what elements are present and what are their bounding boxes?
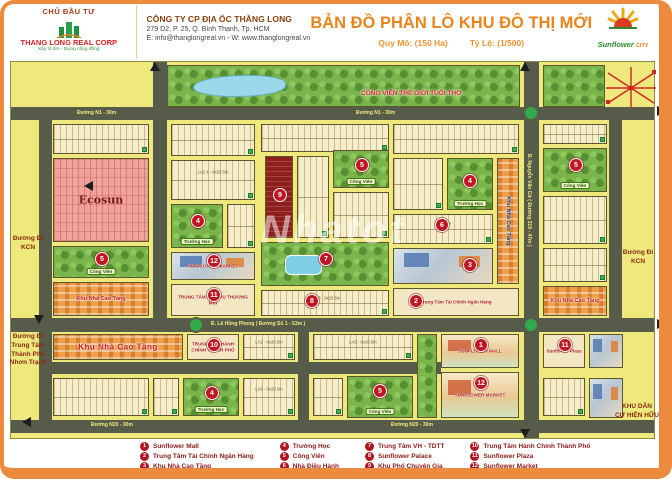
map-marker-1: 1 (474, 338, 488, 352)
legend-label: Khu Nhà Cao Tầng (153, 463, 211, 470)
sunflower-market-block-label: SUNFLOWER MARKET (444, 392, 517, 398)
lots-block: LA2 - 9x20.5m (243, 334, 295, 360)
block-label-chip: Trường Học (181, 238, 214, 245)
lots-block: LA1.4 - 9x20.5m (171, 160, 255, 200)
block-label-chip: Công Viên (561, 182, 590, 189)
lots-block (543, 248, 607, 282)
map-marker-5: 5 (355, 158, 369, 172)
road-le-hong-phong (11, 318, 655, 332)
header: CHỦ ĐẦU TƯ THANG LONG REAL CORP Xây tổ ấ… (18, 5, 654, 59)
edge-direction-label: Đường ĐiTrung TâmThành PhốNhơn Trạch (2, 333, 54, 368)
map-marker-10: 10 (207, 338, 221, 352)
direction-arrow-up (150, 62, 160, 71)
legend-number-badge: 2 (140, 452, 149, 461)
watermark: Nhatot (261, 208, 406, 253)
block-label-chip: Trường Học (195, 406, 228, 413)
park-name-label: CÔNG VIÊN THẾ GIỚI TUỔI THƠ (361, 90, 462, 97)
legend-item: 10Trung Tâm Hành Chính Thành Phố (470, 442, 590, 450)
highrise-block: Khu Nhà Cao Tầng (53, 334, 183, 360)
legend-column: 7Trung Tâm VH - TDTT8Sunflower Palace9Kh… (365, 442, 444, 470)
legend-label: Sunflower Market (483, 463, 537, 470)
road-east-edge (609, 107, 622, 332)
block-label-chip: Công Viên (366, 408, 395, 415)
legend-column: 1Sunflower Mall2Trung Tâm Tài Chính Ngân… (140, 442, 254, 470)
highrise-strip: Khu Nhà Cao Tầng (497, 158, 519, 284)
scale-area: Quy Mô: (150 Ha) (378, 38, 447, 48)
map-zone: EcosunCông ViênKhu Nhà Cao TầngLA1.4 - 9… (0, 61, 672, 439)
lots-block (261, 124, 389, 152)
map-marker-9: 9 (273, 188, 287, 202)
park-childhood-world (167, 65, 520, 107)
road-name-label: Đường N20 - 30m (391, 422, 433, 428)
roundabout (523, 317, 539, 333)
map-marker-4: 4 (191, 214, 205, 228)
legend-label: Công Viên (293, 453, 325, 460)
map-marker-5: 5 (373, 384, 387, 398)
direction-arrow-up (520, 62, 530, 71)
lots-block (227, 204, 255, 248)
legend-number-badge: 8 (365, 452, 374, 461)
legend-item: 11Sunflower Plaza (470, 452, 590, 460)
highrise-block-label: Khu Nhà Cao Tầng (550, 298, 599, 304)
block-label-chip: Công Viên (87, 268, 116, 275)
map-marker-4: 4 (463, 174, 477, 188)
legend-label: Trung Tâm VH - TDTT (378, 443, 444, 450)
legend-number-badge: 3 (140, 462, 149, 471)
legend-label: Khu Phố Chuyên Gia (378, 463, 443, 470)
map-marker-8: 8 (305, 294, 319, 308)
roundabout (188, 317, 204, 333)
road-name-label: Đ. Lê Hồng Phong ( Đường Số 1 - 53m ) (211, 321, 305, 327)
legend-item: 4Trường Học (280, 442, 339, 450)
legend-column: 4Trường Học5Công Viên6Nhà Điều Hành (280, 442, 339, 470)
thang-long-logo-icon (18, 18, 120, 38)
ecosun-area: Ecosun (53, 158, 149, 242)
road-name-label: Đường N1 - 30m (356, 110, 395, 116)
legend-label: Trung Tâm Tài Chính Ngân Hàng (153, 453, 254, 460)
direction-arrow-left (22, 417, 31, 427)
direction-arrow-left (84, 181, 93, 191)
lots-block (53, 378, 149, 416)
lots-block (313, 378, 343, 416)
legend-item: 5Công Viên (280, 452, 339, 460)
investor-block: CHỦ ĐẦU TƯ THANG LONG REAL CORP Xây tổ ấ… (18, 5, 120, 59)
legend-item: 6Nhà Điều Hành (280, 462, 339, 470)
investor-label: CHỦ ĐẦU TƯ (18, 7, 120, 16)
roundabout (523, 105, 539, 121)
legend-number-badge: 6 (280, 462, 289, 471)
block-label-chip: Trường Học (454, 200, 487, 207)
map-canvas: EcosunCông ViênKhu Nhà Cao TầngLA1.4 - 9… (10, 61, 655, 439)
sunflower-sun-icon (603, 7, 643, 35)
legend-item: 7Trung Tâm VH - TDTT (365, 442, 444, 450)
park-strip (417, 334, 437, 418)
lots-block (543, 378, 585, 416)
lots-block: LA5 - 9x20.5m (313, 334, 413, 360)
sunflower-city-logo: Sunflower CITY (592, 5, 654, 59)
edge-direction-label: Đường ĐiKCN (6, 235, 50, 253)
lots-block (171, 124, 255, 156)
brand-text: Sunflower CITY (592, 40, 654, 49)
edge-direction-label: Đường ĐiKCN (614, 249, 662, 267)
map-marker-4: 4 (205, 386, 219, 400)
logo-tagline: Xây tổ ấm - Dựng cộng đồng (18, 47, 120, 52)
legend-label: Trường Học (293, 443, 331, 450)
map-marker-11: 11 (558, 338, 572, 352)
map-marker-6: 6 (435, 218, 449, 232)
legend-number-badge: 11 (470, 452, 479, 461)
legend-label: Trung Tâm Hành Chính Thành Phố (483, 443, 590, 450)
lot-size-label: LA5 - 9x20.5m (349, 339, 376, 344)
company-contact: E: info@thanglongreal.vn - W: www.thangl… (147, 35, 311, 42)
highrise-strip-label: Khu Nhà Cao Tầng (505, 196, 511, 245)
direction-arrow-right (657, 106, 666, 116)
highrise-block: Khu Nhà Cao Tầng (53, 282, 149, 316)
legend-label: Sunflower Plaza (483, 453, 533, 460)
map-marker-5: 5 (95, 252, 109, 266)
highrise-towers-block (393, 248, 493, 284)
ecosun-area-label: Ecosun (79, 194, 124, 207)
highrise-block: Khu Nhà Cao Tầng (543, 286, 607, 316)
road-internal-v (298, 332, 309, 420)
lots-block (53, 124, 149, 154)
legend-number-badge: 4 (280, 442, 289, 451)
tower-block (589, 334, 623, 368)
lots-block: LA2.8 - 9x20.5m (261, 290, 389, 316)
park-northeast (543, 65, 605, 107)
legend-item: 12Sunflower Market (470, 462, 590, 470)
legend-label: Sunflower Palace (378, 453, 432, 460)
logo-name: THANG LONG REAL CORP (18, 38, 120, 47)
company-name: CÔNG TY CP ĐỊA ỐC THĂNG LONG (147, 14, 311, 24)
highrise-block-label: Khu Nhà Cao Tầng (76, 296, 125, 302)
title-block: BẢN ĐỒ PHÂN LÔ KHU ĐÔ THỊ MỚI Quy Mô: (1… (310, 5, 592, 59)
lots-block (393, 158, 443, 210)
lot-size-label: LA6 - 9x20.5m (255, 387, 282, 392)
road-name-label: Đường N20 - 30m (91, 422, 133, 428)
lots-block (153, 378, 179, 416)
direction-arrow-down (34, 315, 44, 324)
map-marker-12: 12 (207, 254, 221, 268)
lots-block (393, 124, 519, 154)
highrise-block-label: Khu Nhà Cao Tầng (78, 343, 158, 352)
legend: 1Sunflower Mall2Trung Tâm Tài Chính Ngân… (140, 442, 590, 470)
legend-label: Sunflower Mall (153, 443, 199, 450)
compass-icon (602, 65, 660, 111)
road-west-edge (39, 107, 52, 433)
edge-direction-label: KHU DÂNCƯ HIỆN HỮU (610, 403, 664, 421)
road-name-label: Đường N1 - 30m (77, 110, 116, 116)
legend-item: 9Khu Phố Chuyên Gia (365, 462, 444, 470)
legend-item: 3Khu Nhà Cao Tầng (140, 462, 254, 470)
road-d1 (153, 62, 167, 332)
legend-item: 8Sunflower Palace (365, 452, 444, 460)
direction-arrow-down (520, 429, 530, 438)
lots-block (543, 196, 607, 244)
road-internal (39, 362, 441, 374)
legend-number-badge: 12 (470, 462, 479, 471)
lot-size-label: LA2 - 9x20.5m (255, 339, 282, 344)
lots-block: LA6 - 9x20.5m (243, 378, 295, 416)
map-marker-3: 3 (463, 258, 477, 272)
direction-arrow-right (657, 319, 666, 329)
lot-size-label: LA1.4 - 9x20.5m (198, 169, 229, 174)
company-info: CÔNG TY CP ĐỊA ỐC THĂNG LONG 279 D2, P. … (136, 5, 311, 59)
block-label-chip: Công Viên (347, 178, 376, 185)
map-marker-11: 11 (207, 288, 221, 302)
lots-block (543, 124, 607, 144)
legend-number-badge: 1 (140, 442, 149, 451)
road-name-label: Đ. Nguyễn Văn Cừ ( Đường 319 - 47m ) (526, 154, 532, 246)
scale-ratio: Tỷ Lệ: (1/500) (470, 38, 524, 48)
legend-label: Nhà Điều Hành (293, 463, 339, 470)
legend-number-badge: 9 (365, 462, 374, 471)
map-marker-7: 7 (319, 252, 333, 266)
legend-number-badge: 7 (365, 442, 374, 451)
legend-item: 2Trung Tâm Tài Chính Ngân Hàng (140, 452, 254, 460)
map-marker-12: 12 (474, 376, 488, 390)
scale-line: Quy Mô: (150 Ha) Tỷ Lệ: (1/500) (310, 38, 592, 48)
page-title: BẢN ĐỒ PHÂN LÔ KHU ĐÔ THỊ MỚI (310, 14, 592, 33)
company-address: 279 D2, P. 25, Q. Bình Thạnh, Tp. HCM (147, 26, 311, 33)
legend-column: 10Trung Tâm Hành Chính Thành Phố11Sunflo… (470, 442, 590, 470)
legend-number-badge: 5 (280, 452, 289, 461)
map-marker-2: 2 (409, 294, 423, 308)
map-marker-5: 5 (569, 158, 583, 172)
legend-number-badge: 10 (470, 442, 479, 451)
legend-item: 1Sunflower Mall (140, 442, 254, 450)
